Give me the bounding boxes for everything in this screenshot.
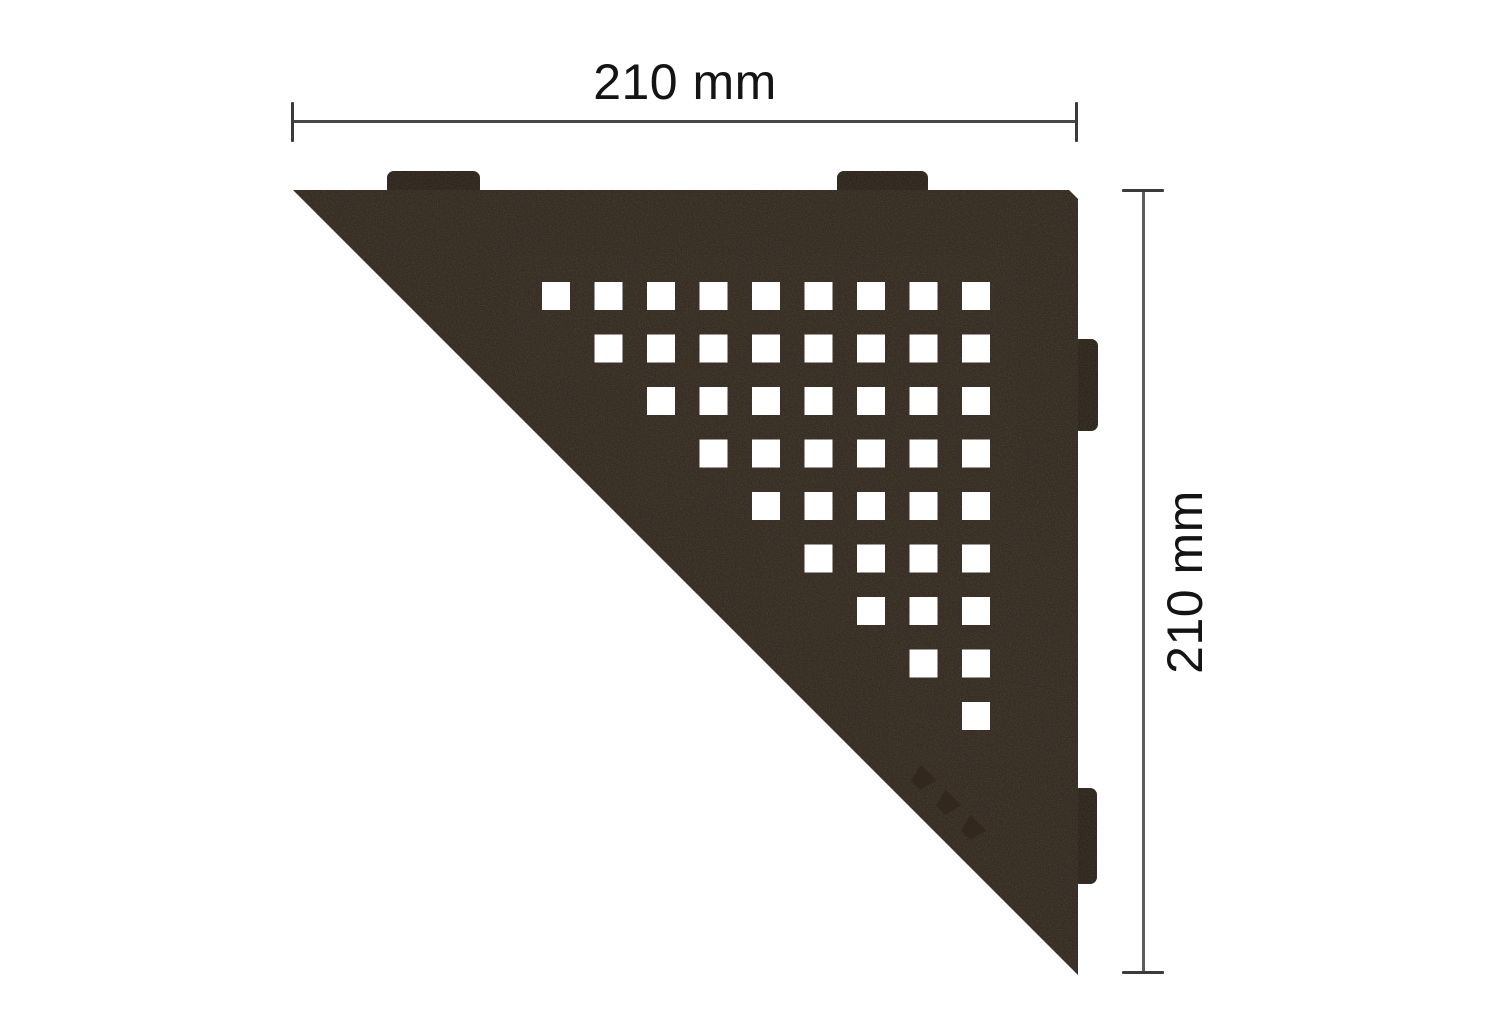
- dimension-height-line: [1142, 190, 1145, 973]
- perforation-hole: [805, 282, 833, 310]
- perforation-hole: [752, 282, 780, 310]
- perforation-hole: [910, 335, 938, 363]
- corner-shelf: [270, 155, 1110, 995]
- perforation-hole: [805, 545, 833, 573]
- dimension-width-tick-right: [1075, 102, 1078, 142]
- perforation-hole: [962, 387, 990, 415]
- perforation-hole: [752, 387, 780, 415]
- perforation-hole: [857, 387, 885, 415]
- perforation-hole: [542, 282, 570, 310]
- perforation-hole: [962, 702, 990, 730]
- perforation-hole: [857, 492, 885, 520]
- dimension-height-tick-top: [1122, 189, 1164, 192]
- perforation-hole: [752, 335, 780, 363]
- perforation-hole: [700, 440, 728, 468]
- perforation-hole: [857, 335, 885, 363]
- perforation-hole: [805, 440, 833, 468]
- perforation-hole: [857, 597, 885, 625]
- perforation-hole: [700, 387, 728, 415]
- perforation-hole: [647, 387, 675, 415]
- perforation-hole: [910, 440, 938, 468]
- perforation-hole: [910, 650, 938, 678]
- perforation-hole: [962, 335, 990, 363]
- dimension-width-label: 210 mm: [293, 57, 1077, 107]
- perforation-hole: [700, 282, 728, 310]
- perforation-hole: [752, 492, 780, 520]
- perforation-hole: [647, 335, 675, 363]
- perforation-hole: [857, 440, 885, 468]
- perforation-hole: [857, 545, 885, 573]
- perforation-hole: [805, 387, 833, 415]
- perforation-hole: [962, 597, 990, 625]
- perforation-hole: [910, 545, 938, 573]
- perforation-hole: [910, 492, 938, 520]
- corner-shelf-drawing: [0, 0, 1500, 1017]
- perforation-hole: [962, 545, 990, 573]
- product-dimension-diagram: 210 mm 210 mm: [0, 0, 1500, 1017]
- perforation-hole: [857, 282, 885, 310]
- plate-texture: [270, 155, 1110, 995]
- perforation-hole: [647, 282, 675, 310]
- dimension-width-line: [293, 120, 1077, 123]
- perforation-hole: [752, 440, 780, 468]
- dimension-height-tick-bottom: [1122, 971, 1164, 974]
- dimension-height-label: 210 mm: [1160, 382, 1210, 782]
- perforation-hole: [910, 387, 938, 415]
- dimension-width-tick-left: [291, 102, 294, 142]
- perforation-hole: [962, 282, 990, 310]
- perforation-hole: [700, 335, 728, 363]
- perforation-hole: [910, 282, 938, 310]
- perforation-hole: [805, 492, 833, 520]
- perforation-hole: [805, 335, 833, 363]
- perforation-hole: [595, 335, 623, 363]
- perforation-hole: [962, 492, 990, 520]
- perforation-hole: [962, 440, 990, 468]
- perforation-hole: [962, 650, 990, 678]
- perforation-hole: [910, 597, 938, 625]
- perforation-hole: [595, 282, 623, 310]
